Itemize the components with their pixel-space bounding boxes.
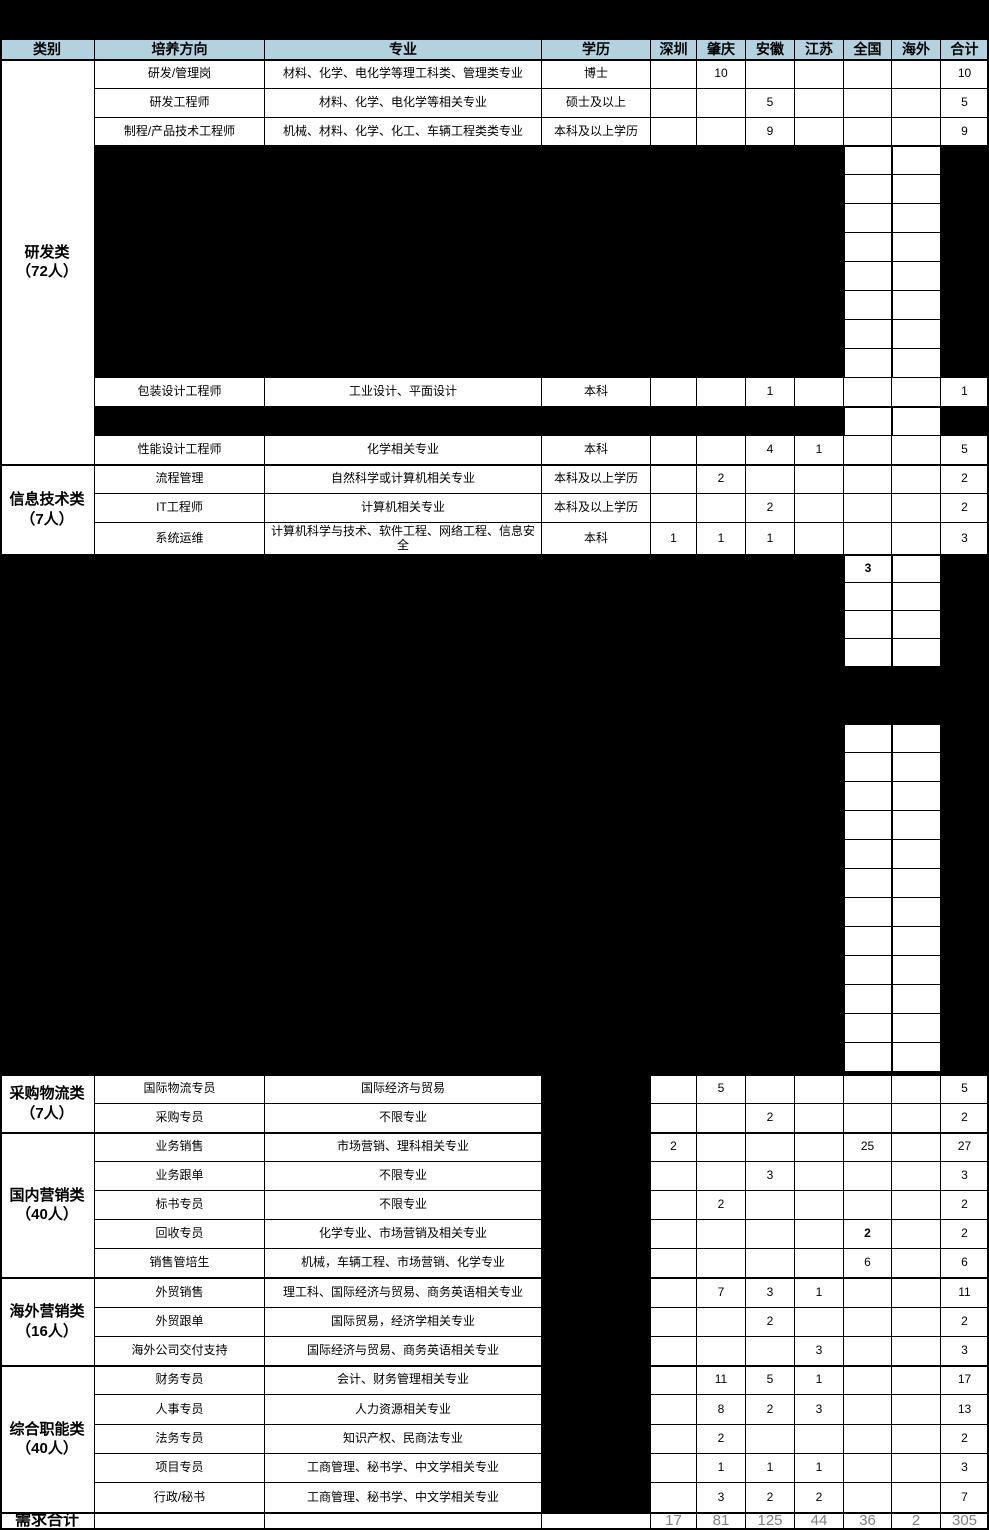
direction-cell: 标书专员 bbox=[95, 1191, 265, 1220]
count-cell-zhaoqing bbox=[697, 89, 746, 118]
redacted-grid-cell-overseas bbox=[892, 956, 941, 985]
count-cell-national: 2 bbox=[844, 1220, 892, 1249]
count-cell-jiangsu: 1 bbox=[795, 1366, 844, 1395]
count-cell-total: 2 bbox=[941, 1104, 989, 1133]
category-cell: 综合职能类（40人） bbox=[0, 1366, 95, 1513]
count-cell-national bbox=[844, 1366, 892, 1395]
count-cell-jiangsu bbox=[795, 465, 844, 494]
header-cell-total: 合计 bbox=[941, 40, 989, 60]
count-cell-overseas bbox=[892, 118, 941, 146]
degree-cell: 硕士及以上 bbox=[542, 89, 651, 118]
count-cell-total: 3 bbox=[941, 1454, 989, 1483]
count-cell-shenzhen bbox=[651, 465, 697, 494]
header-cell-shenzhen: 深圳 bbox=[651, 40, 697, 60]
category-label: 采购物流类 bbox=[9, 1084, 84, 1104]
count-cell-national bbox=[844, 1454, 892, 1483]
degree-cell: 本科及以上学历 bbox=[542, 118, 651, 146]
header-cell-direction: 培养方向 bbox=[95, 40, 265, 60]
group-separator-line bbox=[0, 1277, 989, 1279]
totals-empty-direction bbox=[95, 1513, 265, 1530]
redacted-grid-cell-national bbox=[844, 175, 892, 204]
redacted-grid-cell-overseas bbox=[892, 175, 941, 204]
major-cell: 不限专业 bbox=[265, 1162, 542, 1191]
count-cell-total: 2 bbox=[941, 1191, 989, 1220]
count-cell-shenzhen bbox=[651, 436, 697, 465]
direction-cell: 外贸跟单 bbox=[95, 1308, 265, 1337]
count-cell-zhaoqing bbox=[697, 1133, 746, 1162]
count-cell-overseas bbox=[892, 1133, 941, 1162]
major-cell: 机械，车辆工程、市场营销、化学专业 bbox=[265, 1249, 542, 1278]
count-cell-total: 11 bbox=[941, 1278, 989, 1308]
count-cell-overseas bbox=[892, 1454, 941, 1483]
redacted-grid-cell-overseas bbox=[892, 753, 941, 782]
count-cell-zhaoqing: 2 bbox=[697, 465, 746, 494]
count-cell-national bbox=[844, 60, 892, 89]
count-cell-anhui bbox=[746, 1133, 795, 1162]
count-cell-anhui: 5 bbox=[746, 1366, 795, 1395]
count-cell-shenzhen bbox=[651, 378, 697, 407]
direction-cell: 销售管培生 bbox=[95, 1249, 265, 1278]
count-cell-zhaoqing bbox=[697, 118, 746, 146]
redacted-grid-cell-national bbox=[844, 611, 892, 639]
group-separator-line bbox=[0, 1365, 989, 1367]
count-cell-total: 2 bbox=[941, 465, 989, 494]
direction-cell: 人事专员 bbox=[95, 1395, 265, 1425]
count-cell-anhui bbox=[746, 1425, 795, 1454]
redacted-grid-cell-national bbox=[844, 782, 892, 811]
degree-cell: 本科及以上学历 bbox=[542, 465, 651, 494]
totals-empty-major bbox=[265, 1513, 542, 1530]
redacted-grid-cell-overseas bbox=[892, 204, 941, 233]
count-cell-zhaoqing bbox=[697, 1308, 746, 1337]
count-cell-national bbox=[844, 1483, 892, 1513]
header-cell-category: 类别 bbox=[0, 40, 95, 60]
group-separator-line bbox=[0, 59, 989, 61]
count-cell-shenzhen bbox=[651, 118, 697, 146]
major-cell: 化学专业、市场营销及相关专业 bbox=[265, 1220, 542, 1249]
redacted-grid-cell-overseas bbox=[892, 898, 941, 927]
count-cell-zhaoqing bbox=[697, 494, 746, 523]
count-cell-shenzhen bbox=[651, 1366, 697, 1395]
count-cell-jiangsu bbox=[795, 1075, 844, 1104]
header-cell-degree: 学历 bbox=[542, 40, 651, 60]
redacted-grid-cell-national bbox=[844, 1043, 892, 1072]
major-cell: 机械、材料、化学、化工、车辆工程类类专业 bbox=[265, 118, 542, 146]
count-cell-jiangsu bbox=[795, 118, 844, 146]
redacted-grid-cell-overseas bbox=[892, 869, 941, 898]
category-label: 研发类 bbox=[24, 243, 69, 263]
count-cell-overseas bbox=[892, 1249, 941, 1278]
count-cell-zhaoqing: 5 bbox=[697, 1075, 746, 1104]
redacted-grid-cell-overseas bbox=[892, 724, 941, 753]
redacted-grid-cell-overseas bbox=[892, 233, 941, 262]
degree-cell: 本科及以上学历 bbox=[542, 494, 651, 523]
count-cell-overseas bbox=[892, 1425, 941, 1454]
redacted-grid-cell-overseas bbox=[892, 262, 941, 291]
major-cell: 工业设计、平面设计 bbox=[265, 378, 542, 407]
redacted-grid-cell-national bbox=[844, 898, 892, 927]
header-cell-national: 全国 bbox=[844, 40, 892, 60]
redacted-grid-cell-national bbox=[844, 583, 892, 611]
redacted-grid-cell-overseas bbox=[892, 1043, 941, 1072]
count-cell-anhui: 4 bbox=[746, 436, 795, 465]
count-cell-jiangsu bbox=[795, 60, 844, 89]
major-cell: 不限专业 bbox=[265, 1104, 542, 1133]
direction-cell: 业务销售 bbox=[95, 1133, 265, 1162]
count-cell-shenzhen bbox=[651, 1104, 697, 1133]
category-cell: 研发类（72人） bbox=[0, 60, 95, 465]
count-cell-total: 10 bbox=[941, 60, 989, 89]
header-cell-anhui: 安徽 bbox=[746, 40, 795, 60]
count-cell-shenzhen bbox=[651, 1425, 697, 1454]
count-cell-overseas bbox=[892, 1191, 941, 1220]
count-cell-jiangsu bbox=[795, 1220, 844, 1249]
redacted-grid-cell-national bbox=[844, 956, 892, 985]
count-cell-anhui bbox=[746, 1075, 795, 1104]
count-cell-zhaoqing: 1 bbox=[697, 1454, 746, 1483]
recruitment-demand-table: 类别培养方向专业学历深圳肇庆安徽江苏全国海外合计研发类（72人）信息技术类（7人… bbox=[0, 0, 989, 1530]
count-cell-overseas bbox=[892, 1483, 941, 1513]
direction-cell: 项目专员 bbox=[95, 1454, 265, 1483]
redacted-grid-cell-national bbox=[844, 869, 892, 898]
redaction-block bbox=[941, 407, 989, 436]
count-cell-national bbox=[844, 1425, 892, 1454]
direction-cell: 研发/管理岗 bbox=[95, 60, 265, 89]
count-cell-total: 2 bbox=[941, 1308, 989, 1337]
redacted-grid-cell-overseas bbox=[892, 782, 941, 811]
major-cell: 国际经济与贸易 bbox=[265, 1075, 542, 1104]
count-cell-jiangsu bbox=[795, 1425, 844, 1454]
redacted-grid-cell-national bbox=[844, 204, 892, 233]
direction-cell: 性能设计工程师 bbox=[95, 436, 265, 465]
count-cell-shenzhen: 2 bbox=[651, 1133, 697, 1162]
count-cell-jiangsu bbox=[795, 1104, 844, 1133]
redacted-grid-cell-overseas bbox=[892, 291, 941, 320]
header-cell-jiangsu: 江苏 bbox=[795, 40, 844, 60]
count-cell-national bbox=[844, 1191, 892, 1220]
count-cell-zhaoqing: 10 bbox=[697, 60, 746, 89]
direction-cell: 包装设计工程师 bbox=[95, 378, 265, 407]
category-count: （7人） bbox=[20, 510, 73, 530]
count-cell-anhui bbox=[746, 465, 795, 494]
count-cell-zhaoqing: 7 bbox=[697, 1278, 746, 1308]
redacted-grid-cell-national bbox=[844, 840, 892, 869]
count-cell-jiangsu bbox=[795, 1191, 844, 1220]
count-cell-jiangsu bbox=[795, 1162, 844, 1191]
count-cell-anhui: 2 bbox=[746, 1483, 795, 1513]
count-cell-total: 17 bbox=[941, 1366, 989, 1395]
count-cell-zhaoqing bbox=[697, 1162, 746, 1191]
count-cell-overseas bbox=[892, 1308, 941, 1337]
count-cell-anhui: 3 bbox=[746, 1278, 795, 1308]
totals-value-jiangsu: 44 bbox=[795, 1513, 844, 1530]
count-cell-zhaoqing: 8 bbox=[697, 1395, 746, 1425]
category-cell: 采购物流类（7人） bbox=[0, 1075, 95, 1133]
direction-cell: 研发工程师 bbox=[95, 89, 265, 118]
count-cell-total: 5 bbox=[941, 436, 989, 465]
count-cell-jiangsu bbox=[795, 1249, 844, 1278]
category-count: （40人） bbox=[16, 1439, 78, 1459]
count-cell-shenzhen: 1 bbox=[651, 523, 697, 555]
direction-cell: 采购专员 bbox=[95, 1104, 265, 1133]
direction-cell: 财务专员 bbox=[95, 1366, 265, 1395]
category-cell: 海外营销类（16人） bbox=[0, 1278, 95, 1366]
count-cell-shenzhen bbox=[651, 1162, 697, 1191]
redacted-grid-cell-national bbox=[844, 262, 892, 291]
redacted-grid-cell-overseas bbox=[892, 985, 941, 1014]
direction-cell: 制程/产品技术工程师 bbox=[95, 118, 265, 146]
count-cell-national bbox=[844, 1395, 892, 1425]
count-cell-shenzhen bbox=[651, 60, 697, 89]
direction-cell: 法务专员 bbox=[95, 1425, 265, 1454]
count-cell-national: 6 bbox=[844, 1249, 892, 1278]
totals-value-total: 305 bbox=[941, 1513, 989, 1530]
count-cell-zhaoqing bbox=[697, 436, 746, 465]
redacted-grid-cell-national bbox=[844, 927, 892, 956]
totals-value-shenzhen: 17 bbox=[651, 1513, 697, 1530]
count-cell-overseas bbox=[892, 523, 941, 555]
count-cell-national bbox=[844, 523, 892, 555]
count-cell-total: 2 bbox=[941, 1425, 989, 1454]
count-cell-overseas bbox=[892, 465, 941, 494]
count-cell-anhui bbox=[746, 60, 795, 89]
count-cell-shenzhen bbox=[651, 494, 697, 523]
redaction-block bbox=[941, 146, 989, 378]
count-cell-zhaoqing: 2 bbox=[697, 1191, 746, 1220]
count-cell-anhui: 2 bbox=[746, 1104, 795, 1133]
count-cell-zhaoqing bbox=[697, 378, 746, 407]
major-cell: 材料、化学、电化学等理工科类、管理类专业 bbox=[265, 60, 542, 89]
major-cell: 市场营销、理科相关专业 bbox=[265, 1133, 542, 1162]
count-cell-shenzhen bbox=[651, 1337, 697, 1366]
count-cell-national bbox=[844, 378, 892, 407]
redacted-grid-cell-overseas bbox=[892, 811, 941, 840]
count-cell-zhaoqing bbox=[697, 1104, 746, 1133]
count-cell-jiangsu bbox=[795, 89, 844, 118]
count-cell-anhui: 1 bbox=[746, 523, 795, 555]
count-cell-national bbox=[844, 436, 892, 465]
count-cell-overseas bbox=[892, 436, 941, 465]
major-cell: 国际经济与贸易、商务英语相关专业 bbox=[265, 1337, 542, 1366]
count-cell-overseas bbox=[892, 1104, 941, 1133]
redacted-grid-cell-overseas bbox=[892, 349, 941, 378]
count-cell-overseas bbox=[892, 1162, 941, 1191]
count-cell-national: 25 bbox=[844, 1133, 892, 1162]
count-cell-overseas bbox=[892, 494, 941, 523]
category-label: 信息技术类 bbox=[9, 490, 84, 510]
count-cell-total: 13 bbox=[941, 1395, 989, 1425]
totals-value-overseas: 2 bbox=[892, 1513, 941, 1530]
count-cell-national bbox=[844, 1308, 892, 1337]
count-cell-total: 27 bbox=[941, 1133, 989, 1162]
count-cell-jiangsu bbox=[795, 494, 844, 523]
redacted-grid-cell-national bbox=[844, 639, 892, 667]
redaction-block bbox=[542, 1075, 651, 1513]
redacted-grid-cell-national bbox=[844, 320, 892, 349]
count-cell-national bbox=[844, 118, 892, 146]
count-cell-national bbox=[844, 1278, 892, 1308]
redacted-grid-cell-national: 3 bbox=[844, 555, 892, 583]
category-count: （7人） bbox=[20, 1104, 73, 1124]
count-cell-jiangsu bbox=[795, 523, 844, 555]
count-cell-zhaoqing: 1 bbox=[697, 523, 746, 555]
count-cell-jiangsu: 1 bbox=[795, 436, 844, 465]
group-separator-line bbox=[0, 1512, 989, 1514]
redacted-grid-cell-overseas bbox=[892, 639, 941, 667]
count-cell-jiangsu: 2 bbox=[795, 1483, 844, 1513]
redacted-grid-cell-national bbox=[844, 753, 892, 782]
category-label: 综合职能类 bbox=[9, 1420, 84, 1440]
redacted-grid-cell-national bbox=[844, 349, 892, 378]
category-cell: 信息技术类（7人） bbox=[0, 465, 95, 555]
header-cell-overseas: 海外 bbox=[892, 40, 941, 60]
category-count: （40人） bbox=[16, 1205, 78, 1225]
major-cell: 工商管理、秘书学、中文学相关专业 bbox=[265, 1483, 542, 1513]
count-cell-anhui: 9 bbox=[746, 118, 795, 146]
count-cell-national bbox=[844, 1104, 892, 1133]
category-cell: 国内营销类（40人） bbox=[0, 1133, 95, 1278]
count-cell-national bbox=[844, 1162, 892, 1191]
degree-cell: 本科 bbox=[542, 436, 651, 465]
count-cell-total: 5 bbox=[941, 1075, 989, 1104]
major-cell: 理工科、国际经济与贸易、商务英语相关专业 bbox=[265, 1278, 542, 1308]
count-cell-zhaoqing: 11 bbox=[697, 1366, 746, 1395]
count-cell-shenzhen bbox=[651, 1075, 697, 1104]
redacted-grid-cell-overseas bbox=[892, 555, 941, 583]
major-cell: 国际贸易，经济学相关专业 bbox=[265, 1308, 542, 1337]
totals-empty-degree bbox=[542, 1513, 651, 1530]
count-cell-jiangsu: 3 bbox=[795, 1395, 844, 1425]
count-cell-total: 7 bbox=[941, 1483, 989, 1513]
major-cell: 计算机相关专业 bbox=[265, 494, 542, 523]
count-cell-total: 1 bbox=[941, 378, 989, 407]
direction-cell: 系统运维 bbox=[95, 523, 265, 555]
redacted-grid-cell-overseas bbox=[892, 840, 941, 869]
count-cell-total: 2 bbox=[941, 1220, 989, 1249]
count-cell-overseas bbox=[892, 60, 941, 89]
count-cell-anhui: 1 bbox=[746, 1454, 795, 1483]
redacted-grid-cell-national bbox=[844, 146, 892, 175]
count-cell-anhui: 1 bbox=[746, 378, 795, 407]
count-cell-anhui: 5 bbox=[746, 89, 795, 118]
group-separator-line bbox=[0, 1132, 989, 1134]
count-cell-jiangsu bbox=[795, 1133, 844, 1162]
count-cell-shenzhen bbox=[651, 1191, 697, 1220]
count-cell-overseas bbox=[892, 1278, 941, 1308]
redacted-grid-cell-national bbox=[844, 233, 892, 262]
redaction-block bbox=[0, 555, 989, 1075]
count-cell-zhaoqing: 2 bbox=[697, 1425, 746, 1454]
count-cell-total: 5 bbox=[941, 89, 989, 118]
count-cell-anhui bbox=[746, 1249, 795, 1278]
major-cell: 自然科学或计算机相关专业 bbox=[265, 465, 542, 494]
count-cell-anhui bbox=[746, 1337, 795, 1366]
degree-cell: 本科 bbox=[542, 378, 651, 407]
group-separator-line bbox=[0, 464, 989, 466]
count-cell-anhui: 3 bbox=[746, 1162, 795, 1191]
count-cell-shenzhen bbox=[651, 1395, 697, 1425]
count-cell-national bbox=[844, 494, 892, 523]
header-cell-zhaoqing: 肇庆 bbox=[697, 40, 746, 60]
count-cell-shenzhen bbox=[651, 1483, 697, 1513]
count-cell-overseas bbox=[892, 89, 941, 118]
count-cell-total: 2 bbox=[941, 494, 989, 523]
redaction-block bbox=[95, 407, 844, 436]
count-cell-anhui: 2 bbox=[746, 1308, 795, 1337]
totals-value-zhaoqing: 81 bbox=[697, 1513, 746, 1530]
count-cell-overseas bbox=[892, 1337, 941, 1366]
count-cell-overseas bbox=[892, 1395, 941, 1425]
redacted-grid-cell-national bbox=[844, 291, 892, 320]
major-cell: 计算机科学与技术、软件工程、网络工程、信息安全 bbox=[265, 523, 542, 555]
count-cell-anhui bbox=[746, 1191, 795, 1220]
count-cell-jiangsu: 1 bbox=[795, 1278, 844, 1308]
redacted-grid-cell-national bbox=[844, 407, 892, 436]
count-cell-national bbox=[844, 465, 892, 494]
count-cell-shenzhen bbox=[651, 1278, 697, 1308]
count-cell-total: 9 bbox=[941, 118, 989, 146]
redacted-grid-cell-overseas bbox=[892, 407, 941, 436]
category-count: （72人） bbox=[16, 262, 78, 282]
redacted-grid-cell-national bbox=[844, 724, 892, 753]
major-cell: 会计、财务管理相关专业 bbox=[265, 1366, 542, 1395]
totals-value-anhui: 125 bbox=[746, 1513, 795, 1530]
direction-cell: 国际物流专员 bbox=[95, 1075, 265, 1104]
count-cell-zhaoqing bbox=[697, 1220, 746, 1249]
totals-value-national: 36 bbox=[844, 1513, 892, 1530]
degree-cell: 本科 bbox=[542, 523, 651, 555]
count-cell-national bbox=[844, 1337, 892, 1366]
redacted-grid-cell-overseas bbox=[892, 611, 941, 639]
count-cell-anhui: 2 bbox=[746, 494, 795, 523]
major-cell: 工商管理、秘书学、中文学相关专业 bbox=[265, 1454, 542, 1483]
category-label: 海外营销类 bbox=[9, 1302, 84, 1322]
count-cell-shenzhen bbox=[651, 1249, 697, 1278]
redacted-grid-cell-overseas bbox=[892, 1014, 941, 1043]
major-cell: 人力资源相关专业 bbox=[265, 1395, 542, 1425]
count-cell-zhaoqing: 3 bbox=[697, 1483, 746, 1513]
redacted-grid-cell-overseas bbox=[892, 320, 941, 349]
redacted-grid-cell-overseas bbox=[892, 583, 941, 611]
redaction-block bbox=[0, 0, 989, 38]
count-cell-national bbox=[844, 1075, 892, 1104]
redacted-grid-cell-national bbox=[844, 811, 892, 840]
redacted-grid-cell-overseas bbox=[892, 146, 941, 175]
count-cell-total: 3 bbox=[941, 1337, 989, 1366]
category-count: （16人） bbox=[16, 1322, 78, 1342]
count-cell-anhui: 2 bbox=[746, 1395, 795, 1425]
major-cell: 材料、化学、电化学等相关专业 bbox=[265, 89, 542, 118]
major-cell: 化学相关专业 bbox=[265, 436, 542, 465]
category-label: 国内营销类 bbox=[9, 1186, 84, 1206]
major-cell: 不限专业 bbox=[265, 1191, 542, 1220]
redacted-grid-cell-national bbox=[844, 985, 892, 1014]
direction-cell: 外贸销售 bbox=[95, 1278, 265, 1308]
direction-cell: 行政/秘书 bbox=[95, 1483, 265, 1513]
count-cell-zhaoqing bbox=[697, 1249, 746, 1278]
count-cell-jiangsu bbox=[795, 1308, 844, 1337]
count-cell-shenzhen bbox=[651, 1454, 697, 1483]
count-cell-overseas bbox=[892, 1075, 941, 1104]
redaction-block bbox=[95, 146, 844, 378]
count-cell-total: 3 bbox=[941, 1162, 989, 1191]
count-cell-overseas bbox=[892, 378, 941, 407]
count-cell-jiangsu: 3 bbox=[795, 1337, 844, 1366]
degree-cell: 博士 bbox=[542, 60, 651, 89]
count-cell-national bbox=[844, 89, 892, 118]
count-cell-shenzhen bbox=[651, 1220, 697, 1249]
count-cell-jiangsu: 1 bbox=[795, 1454, 844, 1483]
